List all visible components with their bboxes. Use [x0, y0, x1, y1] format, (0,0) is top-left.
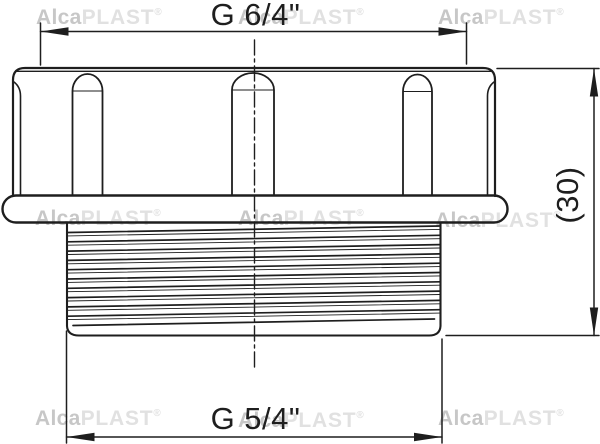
thread-line [68, 285, 440, 292]
thread-line [68, 304, 440, 311]
nut-rib-center [232, 73, 274, 195]
arrow-right-icon [414, 433, 442, 441]
thread-line [68, 300, 440, 307]
arrow-up-icon [590, 69, 598, 97]
arrow-right-icon [439, 27, 467, 35]
thread-line [68, 267, 440, 274]
arrow-down-icon [590, 308, 598, 336]
thread-line [68, 229, 440, 236]
thread-line [68, 226, 440, 233]
thread-line [68, 257, 440, 264]
thread-line [68, 291, 440, 298]
dimension-label-side: (30) [551, 135, 585, 255]
thread-line [68, 276, 440, 283]
thread-line [68, 310, 440, 317]
thread-line [68, 273, 440, 280]
thread-line [68, 248, 440, 255]
thread-line [68, 245, 440, 252]
dimension-label-bottom: G 5/4" [193, 401, 318, 437]
thread-line [68, 239, 440, 246]
nut-left-facet [14, 82, 21, 195]
arrow-left-icon [67, 433, 95, 441]
nut-rib-right [403, 75, 432, 196]
thread-line [68, 235, 440, 242]
thread-line [68, 254, 440, 261]
threaded-section [67, 223, 441, 336]
thread-line [68, 282, 440, 289]
thread-line [68, 263, 440, 270]
nut-rib-left [73, 74, 103, 195]
arrow-left-icon [41, 27, 69, 35]
thread-line [73, 319, 435, 326]
nut-right-facet [488, 82, 495, 195]
thread-line [68, 295, 440, 302]
thread-line [68, 313, 440, 320]
drawing-canvas: AlcaPLAST®AlcaPLAST®AlcaPLAST®AlcaPLAST®… [0, 0, 600, 444]
technical-drawing [0, 0, 600, 444]
thread-lines [68, 226, 440, 326]
dimension-label-top: G 6/4" [193, 0, 318, 33]
